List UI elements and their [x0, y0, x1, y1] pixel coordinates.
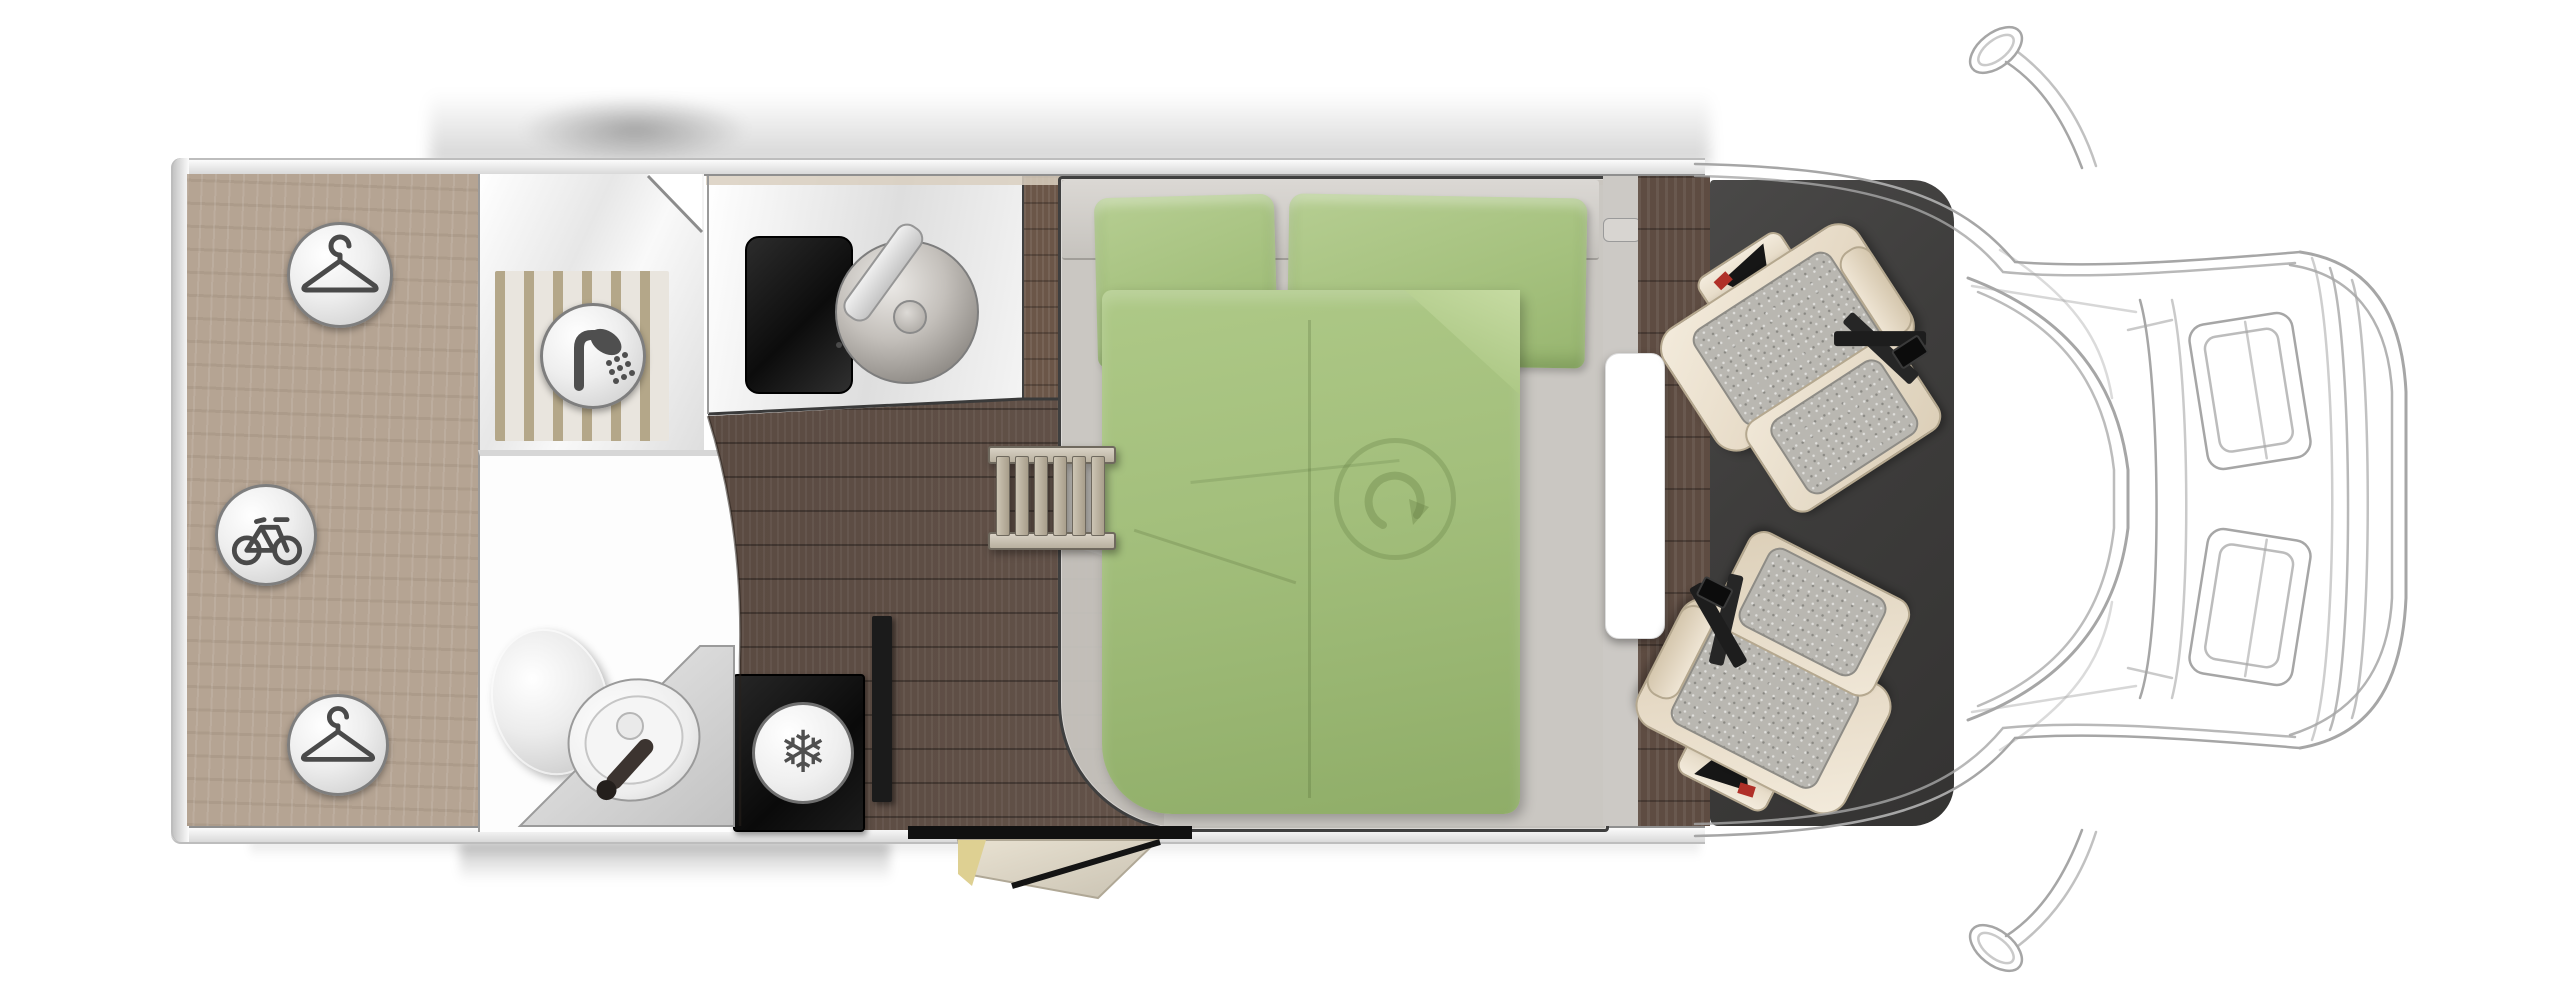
- sink-drain: [893, 300, 927, 334]
- headlight-left: [2187, 311, 2313, 471]
- side-table: [1605, 353, 1665, 639]
- hanger-icon: [287, 222, 393, 328]
- curved-arrow-icon: [1334, 438, 1456, 560]
- latch-tab: [1603, 218, 1641, 242]
- duvet-seam: [1308, 320, 1311, 798]
- partition-wall: [872, 616, 892, 802]
- snowflake-glyph: ❄: [755, 705, 851, 799]
- tall-cabinet: [1022, 176, 1060, 400]
- snowflake-icon: ❄: [752, 702, 854, 804]
- duvet: [1102, 290, 1520, 814]
- entry-threshold: [908, 826, 1192, 839]
- headlight-right: [2187, 527, 2313, 687]
- floorplan-stage: ❄: [0, 0, 2560, 999]
- bicycle-icon: [215, 484, 317, 586]
- top-shadow-blob: [520, 96, 750, 162]
- side-mirror-bottom: [1962, 830, 2096, 980]
- side-mirror-top: [1962, 18, 2096, 168]
- shower-icon: [540, 303, 646, 409]
- ladder-slat: [1034, 456, 1048, 536]
- hanger-icon: [287, 694, 389, 796]
- ladder-slat: [1053, 456, 1067, 536]
- ladder-slat: [1091, 456, 1105, 536]
- bed-ladder: [988, 446, 1112, 546]
- ladder-slat: [1072, 456, 1086, 536]
- ladder-slat: [996, 456, 1010, 536]
- ladder-slat: [1015, 456, 1029, 536]
